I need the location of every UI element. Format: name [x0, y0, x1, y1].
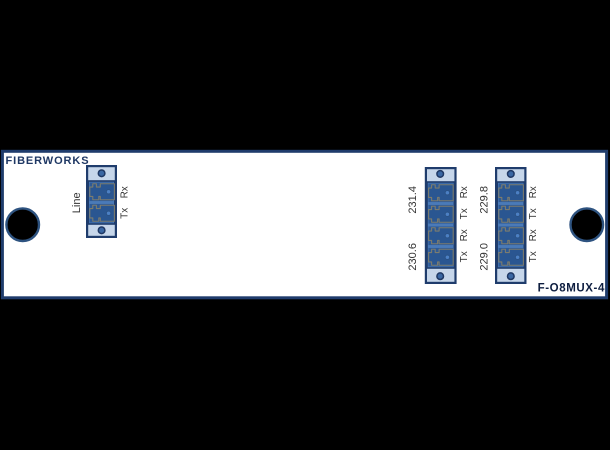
svg-text:F-O8MUX-4: F-O8MUX-4: [538, 283, 605, 295]
svg-text:Rx: Rx: [459, 186, 470, 198]
svg-text:Tx: Tx: [528, 208, 539, 219]
svg-text:229.8: 229.8: [479, 186, 491, 214]
svg-text:231.4: 231.4: [407, 186, 419, 214]
svg-text:Tx: Tx: [459, 208, 470, 219]
svg-text:Rx: Rx: [528, 229, 539, 241]
svg-text:Line: Line: [71, 192, 83, 213]
svg-text:Rx: Rx: [120, 186, 131, 198]
svg-text:Rx: Rx: [459, 229, 470, 241]
svg-text:Tx: Tx: [528, 251, 539, 262]
svg-text:Tx: Tx: [120, 208, 131, 219]
svg-text:229.0: 229.0: [479, 243, 491, 271]
svg-text:Rx: Rx: [528, 186, 539, 198]
svg-text:Tx: Tx: [459, 251, 470, 262]
svg-text:FIBERWORKS: FIBERWORKS: [6, 155, 90, 167]
svg-text:230.6: 230.6: [407, 243, 419, 271]
